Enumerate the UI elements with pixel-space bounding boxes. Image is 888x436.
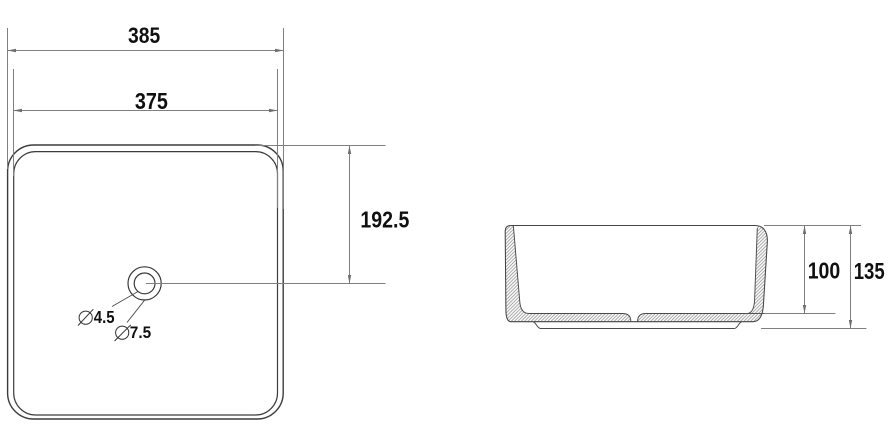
svg-text:375: 375 — [135, 88, 168, 114]
svg-text:135: 135 — [854, 258, 885, 284]
svg-text:7.5: 7.5 — [130, 323, 151, 342]
svg-text:100: 100 — [808, 258, 841, 284]
svg-text:385: 385 — [128, 23, 160, 48]
svg-text:4.5: 4.5 — [94, 307, 115, 327]
svg-text:192.5: 192.5 — [360, 207, 409, 233]
